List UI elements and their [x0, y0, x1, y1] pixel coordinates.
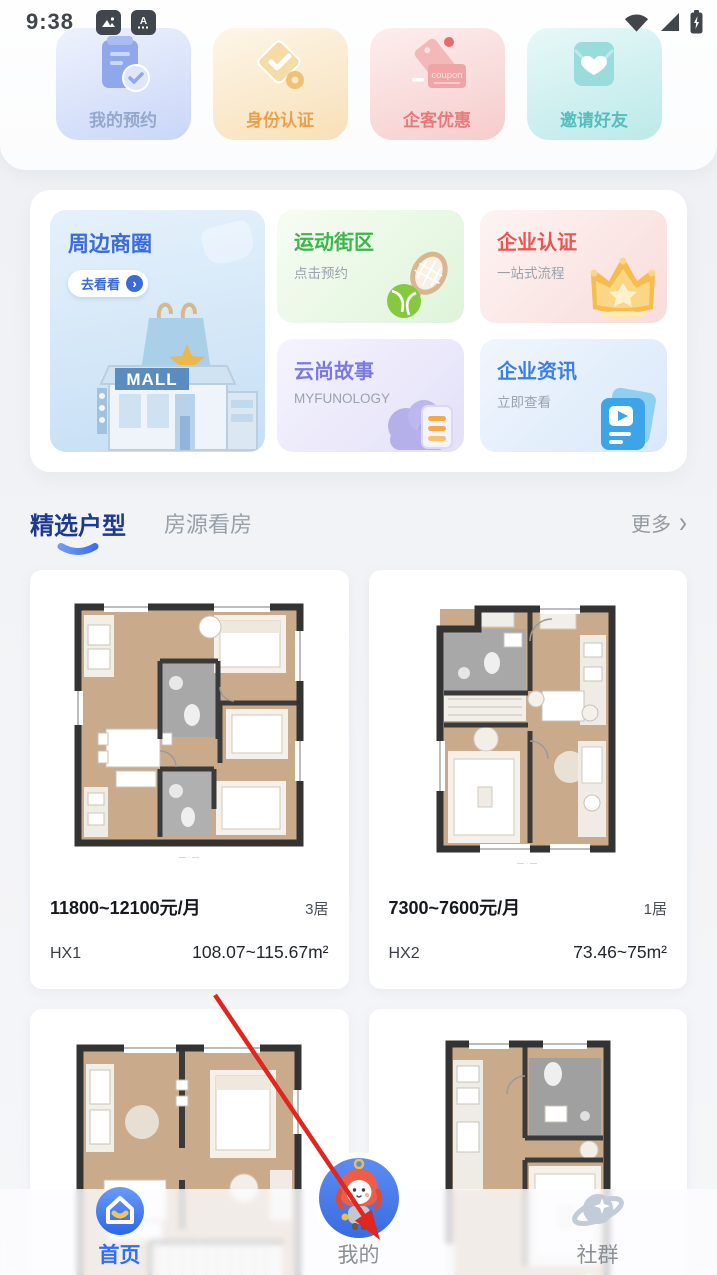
tab-community-label: 社群 [577, 1239, 619, 1269]
quick-action-identity-verification[interactable]: 身份认证 [213, 28, 348, 140]
quick-action-label: 企客优惠 [403, 106, 471, 131]
listing-price: 11800~12100元/月 [50, 894, 201, 920]
feature-card-nearby-mall[interactable]: 周边商圈 去看看 › MALL [50, 210, 265, 452]
tab-home-label: 首页 [99, 1239, 141, 1269]
more-label: 更多 [631, 508, 671, 537]
listing-price: 7300~7600元/月 [389, 894, 521, 920]
status-bar: 9:38 A [0, 0, 717, 44]
bottom-tab-bar: 首页 [0, 1189, 717, 1275]
quick-action-label: 邀请好友 [560, 106, 628, 131]
svg-text:— · —: — · — [179, 854, 199, 861]
floorplan-image: — · — [30, 570, 349, 880]
listing-rooms: 3居 [305, 898, 328, 919]
listing-code: HX1 [50, 945, 81, 963]
tab-featured-label: 精选户型 [30, 513, 126, 540]
mini-card-enterprise-certification[interactable]: 企业认证 一站式流程 [480, 210, 667, 323]
clock: 9:38 [26, 9, 74, 35]
quick-action-label: 我的预约 [89, 106, 157, 131]
system-status-icons [623, 10, 703, 34]
mini-card-cloud-story[interactable]: 云尚故事 MYFUNOLOGY [277, 339, 464, 452]
screenshot-notification-icon [96, 10, 121, 35]
listing-card-hx2[interactable]: — · — 7300~7600元/月 1居 HX2 73.46~75m² [369, 570, 688, 989]
planet-icon [571, 1186, 625, 1236]
coupon-text: coupon [431, 70, 462, 81]
tab-featured-floorplans[interactable]: 精选户型 [30, 506, 126, 556]
mini-card-title: 企业认证 [497, 226, 667, 255]
tennis-icon [384, 251, 462, 323]
quick-action-invite-friends[interactable]: 邀请好友 [527, 28, 662, 140]
listing-rooms: 1居 [644, 898, 667, 919]
chevron-right-icon: › [679, 508, 687, 538]
listing-grid: — · — 11800~12100元/月 3居 HX1 108.07~115.6… [30, 570, 687, 989]
input-method-notification-icon: A [131, 10, 156, 35]
mini-card-sports-block[interactable]: 运动街区 点击预约 [277, 210, 464, 323]
mini-card-title: 云尚故事 [294, 355, 464, 384]
tab-house-viewing[interactable]: 房源看房 [164, 506, 252, 539]
mini-cards-grid: 运动街区 点击预约 企业认证 一站式流程 [277, 210, 667, 452]
services-panel: 周边商圈 去看看 › MALL [30, 190, 687, 472]
battery-charging-icon [690, 10, 703, 34]
svg-text:A: A [140, 16, 147, 27]
listing-area: 73.46~75m² [573, 942, 667, 963]
tab-mine[interactable]: 我的 [299, 1152, 419, 1269]
tab-community[interactable]: 社群 [538, 1186, 658, 1269]
mall-sign: MALL [126, 370, 177, 389]
quick-action-corporate-coupons[interactable]: coupon 企客优惠 [370, 28, 505, 140]
listing-code: HX2 [389, 945, 420, 963]
notification-icons: A [96, 10, 156, 35]
home-icon [95, 1186, 145, 1236]
mini-card-enterprise-news[interactable]: 企业资讯 立即查看 [480, 339, 667, 452]
app-screen: 9:38 A [0, 0, 717, 1275]
wifi-icon [623, 11, 650, 33]
mall-building-illustration: MALL [71, 288, 265, 452]
cloud-document-icon [382, 388, 462, 452]
coffee-cup-watermark [199, 219, 257, 268]
cellular-signal-icon [659, 11, 681, 33]
active-tab-underline [56, 543, 100, 556]
listing-area: 108.07~115.67m² [192, 942, 328, 963]
listing-card-hx1[interactable]: — · — 11800~12100元/月 3居 HX1 108.07~115.6… [30, 570, 349, 989]
mini-card-title: 企业资讯 [497, 355, 667, 384]
section-header: 精选户型 房源看房 更多 › [30, 506, 687, 556]
quick-action-my-reservations[interactable]: 我的预约 [56, 28, 191, 140]
floorplan-image: — · — [369, 570, 688, 880]
crown-icon [583, 253, 665, 323]
tab-home[interactable]: 首页 [60, 1186, 180, 1269]
more-link[interactable]: 更多 › [631, 506, 687, 537]
svg-text:— · —: — · — [517, 860, 537, 867]
video-document-icon [591, 386, 665, 452]
mascot-avatar-icon [318, 1157, 400, 1239]
quick-action-label: 身份认证 [246, 106, 314, 131]
